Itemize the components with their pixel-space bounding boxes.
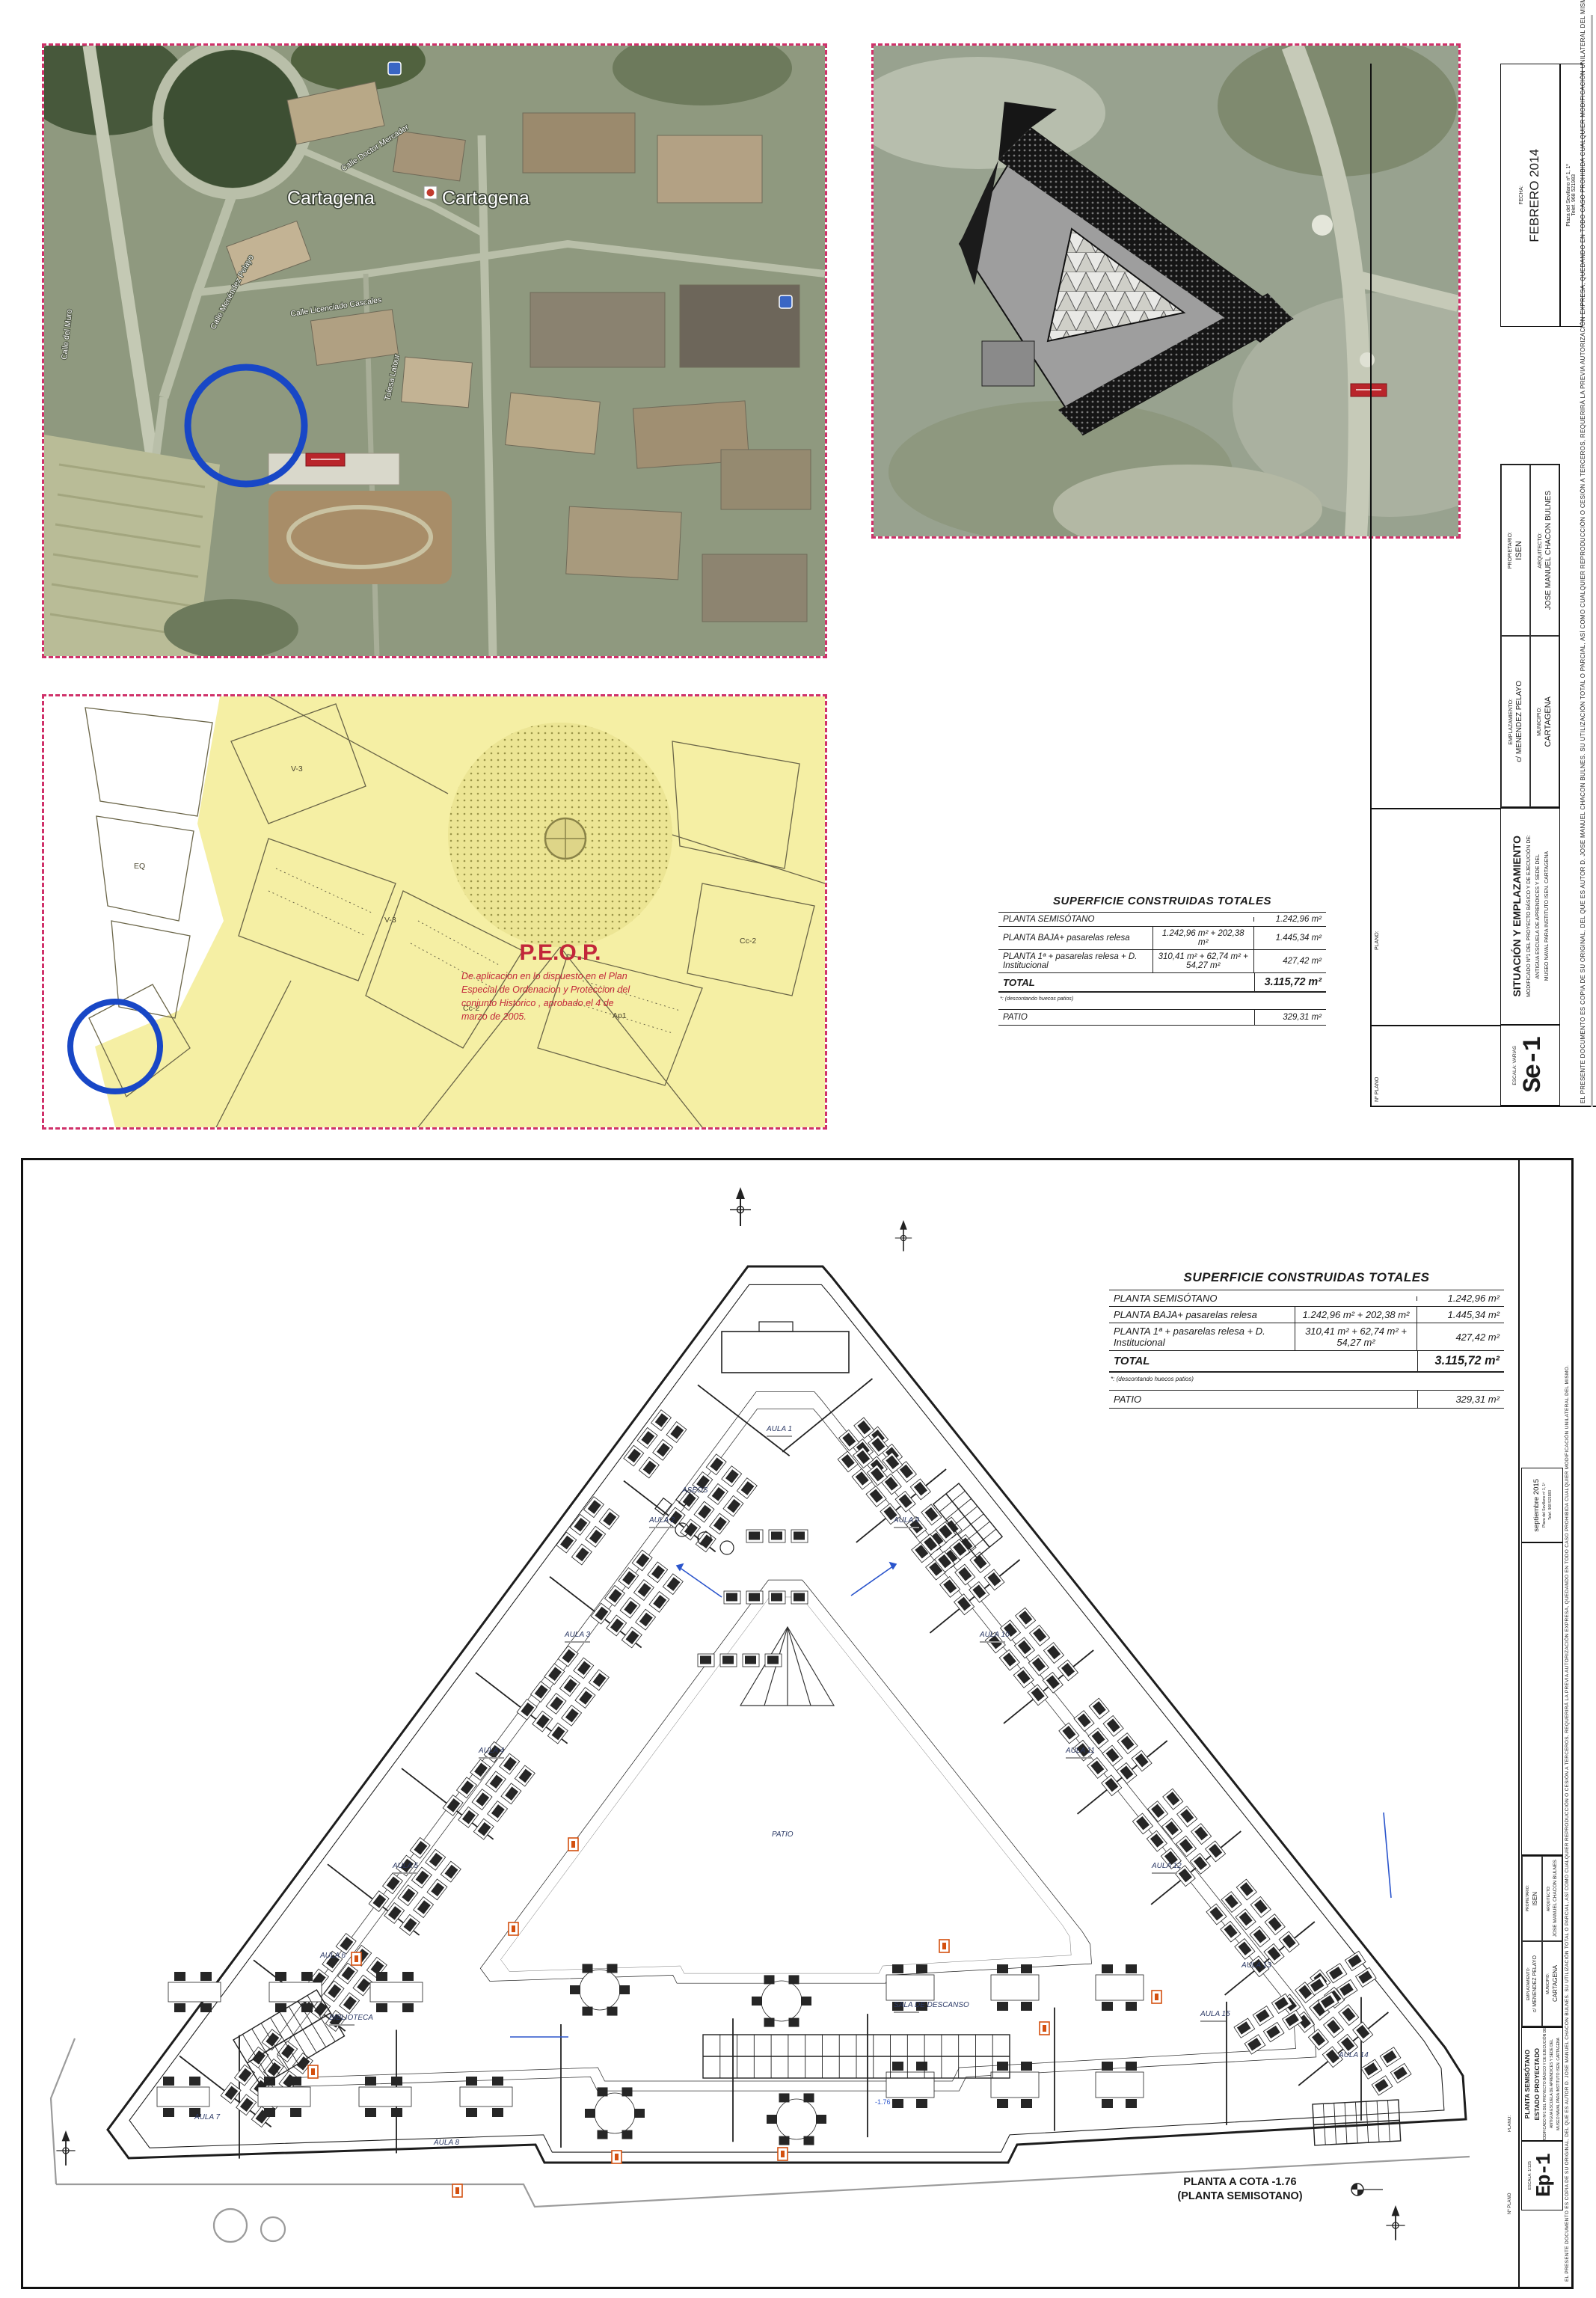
north-arrow-icon: [895, 1220, 912, 1251]
table-total-row: TOTAL 3.115,72 m²: [998, 973, 1326, 993]
row-label: PLANTA 1ª + pasarelas relesa + D. Instit…: [998, 950, 1153, 972]
row-total: 427,42 m²: [1417, 1329, 1504, 1345]
room-label: AULA 6: [319, 1952, 346, 1960]
table-patio-row: PATIO 329,31 m²: [998, 1009, 1326, 1026]
level-marker-icon: [1351, 2184, 1383, 2196]
aerial-photo-city-image: Calle Doctor Mercader Calle Menéndez Pel…: [44, 46, 825, 656]
propietario-cell: PROPIETARIO: ISEN: [1522, 1856, 1542, 1941]
num-plano-side-label: Nº PLANO: [1508, 2154, 1512, 2214]
row-total: 1.242,96 m²: [1417, 1290, 1504, 1306]
level-mark: -1.76: [875, 2098, 891, 2106]
table-row: PLANTA SEMISÓTANO 1.242,96 m²: [1109, 1290, 1504, 1307]
city-label: Cartagena: [442, 188, 530, 209]
plano-title: PLANTA SEMISÓTANO: [1523, 2050, 1531, 2118]
project-name: ANTIGUA ESCUELA DE APRENDICES Y SEDE DEL: [1535, 854, 1541, 979]
table-row: PLANTA 1ª + pasarelas relesa + D. Instit…: [998, 950, 1326, 973]
surface-table-bottom: SUPERFICIE CONSTRUIDAS TOTALES PLANTA SE…: [1109, 1270, 1504, 1409]
road-badge-icon: [306, 453, 345, 466]
project-intro: MODIFICADO Nº1 DEL PROYECTO BÁSICO Y DE …: [1543, 2026, 1547, 2142]
fecha-box: FECHA: FEBRERO 2014: [1500, 64, 1560, 327]
road-badge-icon: [1351, 384, 1387, 396]
total-value: 3.115,72 m²: [1417, 1351, 1504, 1371]
row-detail: 1.242,96 m² + 202,38 m²: [1153, 927, 1254, 949]
north-arrow-icon: [1386, 2205, 1405, 2240]
sheet-number: Ep-1: [1534, 2154, 1556, 2197]
room-label: AULA 7: [194, 2113, 221, 2121]
room-label: AULA 8: [433, 2139, 460, 2147]
table-patio-row: PATIO 329,31 m²: [1109, 1390, 1504, 1409]
emplazamiento-label: EMPLAZAMIENTO:: [1526, 1967, 1531, 2000]
fecha-value: FEBRERO 2014: [1527, 149, 1542, 242]
table-note: *: (descontando huecos patios): [998, 993, 1326, 1009]
caption-line-2: (PLANTA SEMISOTANO): [1143, 2190, 1337, 2204]
municipio-cell: MUNICIPIO: CARTAGENA: [1530, 636, 1559, 807]
table-note: *: (descontando huecos patios): [1109, 1373, 1504, 1390]
propietario-value: ISEN: [1514, 541, 1523, 560]
address-line: Plaza del Sevillano nº 1, 1º: [1566, 164, 1571, 227]
escala-value: ESCALA: VARIAS: [1512, 1046, 1517, 1085]
room-label: ASEOS: [681, 1486, 708, 1495]
emplazamiento-cell: EMPLAZAMIENTO: c/ MENENDEZ PELAYO: [1501, 636, 1530, 807]
arquitecto-label: ARQUITECTO:: [1547, 1886, 1551, 1911]
room-label: AULA 12: [1151, 1862, 1182, 1870]
municipio-cell: MUNICIPIO: CARTAGENA: [1542, 1941, 1562, 2026]
stamp-box: [1521, 1542, 1563, 1855]
address-line: Telef. 968 521983: [1548, 1490, 1553, 1520]
parcel-label: V-3: [384, 916, 396, 925]
patio-value: 329,31 m²: [1254, 1010, 1326, 1025]
sheet-number-box: ESCALA: 1/125 Ep-1: [1521, 2141, 1563, 2210]
aerial-photo-site: [871, 43, 1461, 539]
info-grid: PROPIETARIO: ISEN ARQUITECTO: JOSE MANUE…: [1500, 464, 1560, 808]
patio-label: PATIO: [1109, 1391, 1417, 1408]
info-grid: PROPIETARIO: ISEN ARQUITECTO: JOSE MANUE…: [1521, 1855, 1563, 2027]
zoning-plan-image: V-3 Cc-2 Ap1 EQ V-3 Cc-2 P.E.O.P. De apl…: [44, 696, 825, 1127]
surface-table-title: SUPERFICIE CONSTRUIDAS TOTALES: [998, 895, 1326, 907]
fecha-value: septiembre 2015: [1532, 1479, 1541, 1532]
sheet-edge-mark: [1591, 15, 1593, 1107]
peop-body-line: conjunto Historico , aprobado el 4 de: [461, 998, 614, 1008]
plan-caption: PLANTA A COTA -1.76 (PLANTA SEMISOTANO): [1143, 2175, 1337, 2204]
fecha-box: septiembre 2015 Plaza del Sevillano nº 1…: [1521, 1468, 1563, 1542]
row-detail: 310,41 m² + 62,74 m² + 54,27 m²: [1295, 1323, 1417, 1350]
room-label: BIBLIOTECA: [329, 2014, 373, 2022]
row-label: PLANTA BAJA+ pasarelas relesa: [998, 931, 1153, 945]
total-label: TOTAL: [1109, 1352, 1417, 1370]
row-label: PLANTA SEMISÓTANO: [1109, 1290, 1295, 1306]
propietario-label: PROPIETARIO:: [1508, 532, 1513, 569]
row-label: PLANTA BAJA+ pasarelas relesa: [1109, 1307, 1295, 1323]
row-total: 1.445,34 m²: [1254, 931, 1326, 945]
project-name: MUSEO NAVAL PARA INSTITUTO ISEN. CARTAGE…: [1544, 851, 1550, 981]
municipio-value: CARTAGENA: [1544, 696, 1553, 747]
num-plano-side-label: Nº PLANO: [1375, 1031, 1380, 1102]
table-row: PLANTA SEMISÓTANO 1.242,96 m²: [998, 913, 1326, 927]
surface-table-title: SUPERFICIE CONSTRUIDAS TOTALES: [1109, 1270, 1504, 1285]
row-label: PLANTA SEMISÓTANO: [998, 913, 1153, 926]
parcel-label: Ap1: [613, 1011, 627, 1020]
arquitecto-value: JOSE MANUEL CHACON BULNES: [1553, 1860, 1558, 1937]
sheet-number: Se-1: [1520, 1038, 1548, 1093]
project-name: MUSEO NAVAL PARA INSTITUTO ISEN. CARTAGE…: [1556, 2038, 1561, 2130]
room-label: AULA 3: [564, 1631, 591, 1639]
room-label: AULA 14: [1338, 2051, 1369, 2059]
zoning-plan: V-3 Cc-2 Ap1 EQ V-3 Cc-2 P.E.O.P. De apl…: [42, 694, 827, 1130]
table-row: PLANTA BAJA+ pasarelas relesa 1.242,96 m…: [998, 927, 1326, 950]
plano-box: PLANTA SEMISÓTANO ESTADO PROYECTADO MODI…: [1521, 2027, 1563, 2141]
room-label: AULA 2: [648, 1516, 675, 1525]
plano-box: SITUACIÓN Y EMPLAZAMIENTO MODIFICADO Nº1…: [1500, 808, 1560, 1025]
peop-body-line: De aplicacion en lo dispuesto en el Plan: [461, 971, 627, 981]
north-arrow-icon: [730, 1187, 751, 1226]
drawing-sheets-page: Calle Doctor Mercader Calle Menéndez Pel…: [0, 0, 1596, 2298]
peop-body-line: marzo de 2005.: [461, 1011, 527, 1022]
parcel-label: V-3: [291, 765, 303, 773]
arquitecto-cell: ARQUITECTO: JOSE MANUEL CHACON BULNES: [1530, 465, 1559, 636]
patio-value: 329,31 m²: [1417, 1391, 1504, 1408]
room-label: SALA DE DESCANSO: [894, 2001, 969, 2009]
aerial-photo-city: Calle Doctor Mercader Calle Menéndez Pel…: [42, 43, 827, 658]
furniture-layer: [157, 1379, 1411, 2197]
surface-table-top: SUPERFICIE CONSTRUIDAS TOTALES PLANTA SE…: [998, 895, 1326, 1026]
emplazamiento-value: c/ MENENDEZ PELAYO: [1532, 1955, 1538, 2012]
patio-label: PATIO: [998, 1010, 1254, 1025]
plano-title: ESTADO PROYECTADO: [1533, 2048, 1541, 2121]
row-detail: [1153, 917, 1254, 922]
parcel-label: Cc-2: [740, 937, 756, 946]
project-name: ANTIGUA ESCUELA DE APRENDICES Y SEDE DEL: [1550, 2039, 1554, 2128]
room-label: AULA 5: [392, 1862, 419, 1870]
machine-room-hatch: [759, 1322, 793, 1332]
emplazamiento-cell: EMPLAZAMIENTO: c/ MENENDEZ PELAYO: [1522, 1941, 1542, 2026]
peop-body-line: Especial de Ordenacion y Proteccion del: [461, 984, 630, 995]
municipio-value: CARTAGENA: [1552, 1965, 1559, 2002]
table-total-row: TOTAL 3.115,72 m²: [1109, 1351, 1504, 1373]
room-label: AULA 15: [1200, 2010, 1230, 2018]
emplazamiento-value: c/ MENENDEZ PELAYO: [1515, 681, 1523, 762]
room-label: AULA 4: [478, 1747, 505, 1755]
room-label: AULA 9: [893, 1516, 920, 1525]
total-label: TOTAL: [998, 974, 1254, 991]
arquitecto-value: JOSE MANUEL CHACON BULNES: [1544, 491, 1553, 610]
parcel-label: EQ: [134, 862, 145, 871]
fecha-label: FECHA:: [1519, 186, 1524, 205]
room-label: AULA 10: [979, 1631, 1010, 1639]
municipio-label: MUNICIPIO:: [1546, 1973, 1550, 1994]
plano-title: SITUACIÓN Y EMPLAZAMIENTO: [1511, 836, 1523, 996]
arquitecto-cell: ARQUITECTO: JOSE MANUEL CHACON BULNES: [1542, 1856, 1562, 1941]
row-total: 427,42 m²: [1254, 955, 1326, 968]
peop-title: P.E.O.P.: [520, 940, 601, 965]
table-row: PLANTA BAJA+ pasarelas relesa 1.242,96 m…: [1109, 1307, 1504, 1323]
row-total: 1.242,96 m²: [1254, 913, 1326, 926]
room-label: AULA 13: [1241, 1961, 1271, 1970]
row-total: 1.445,34 m²: [1417, 1307, 1504, 1323]
room-label: AULA 11: [1065, 1747, 1095, 1755]
row-detail: 310,41 m² + 62,74 m² + 54,27 m²: [1153, 950, 1254, 972]
caption-line-1: PLANTA A COTA -1.76: [1143, 2175, 1337, 2190]
project-intro: MODIFICADO Nº1 DEL PROYECTO BÁSICO Y DE …: [1526, 835, 1532, 997]
municipio-label: MUNICIPIO:: [1537, 707, 1542, 736]
total-value: 3.115,72 m²: [1254, 973, 1326, 991]
row-label: PLANTA 1ª + pasarelas relesa + D. Instit…: [1109, 1323, 1295, 1350]
sheet-number-box: ESCALA: VARIAS Se-1: [1500, 1025, 1560, 1106]
address-line: Plaza del Sevillano nº 1, 1º: [1542, 1483, 1547, 1528]
room-label: PATIO: [772, 1830, 794, 1839]
machine-room: [722, 1332, 849, 1373]
city-label: Cartagena: [287, 188, 375, 209]
plano-side-label: PLANO:: [1375, 860, 1380, 950]
table-row: PLANTA 1ª + pasarelas relesa + D. Instit…: [1109, 1323, 1504, 1351]
copyright-disclaimer: EL PRESENTE DOCUMENTO ES COPIA DE SU ORI…: [1580, 333, 1586, 1103]
escala-value: ESCALA: 1/125: [1528, 2161, 1532, 2190]
room-label: AULA 1: [766, 1425, 792, 1433]
row-detail: 1.242,96 m² + 202,38 m²: [1295, 1307, 1417, 1323]
address-line: Telef. 968 521983: [1571, 174, 1577, 216]
propietario-value: ISEN: [1532, 1892, 1538, 1906]
emplazamiento-label: EMPLAZAMIENTO:: [1508, 699, 1514, 745]
arquitecto-label: ARQUITECTO:: [1538, 533, 1543, 569]
copyright-disclaimer: EL PRESENTE DOCUMENTO ES COPIA DE SU ORI…: [1565, 1548, 1570, 2282]
plano-side-label: PLANO:: [1508, 2057, 1512, 2132]
row-detail: [1295, 1296, 1417, 1301]
propietario-cell: PROPIETARIO: ISEN: [1501, 465, 1530, 636]
north-arrow-icon: [56, 2130, 75, 2166]
propietario-label: PROPIETARIO:: [1526, 1885, 1530, 1911]
